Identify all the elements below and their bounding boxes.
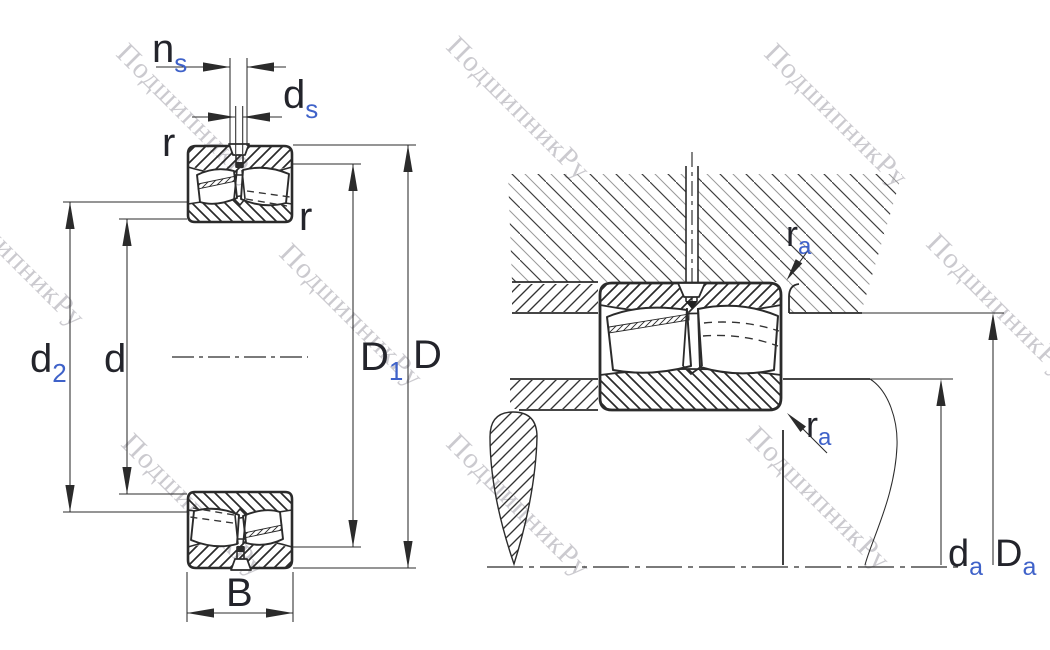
watermark-text: ПодшипникРу — [758, 37, 915, 194]
label-ds: ds — [283, 73, 318, 124]
label-da: da — [948, 533, 983, 581]
lubrication-groove-notch — [229, 144, 249, 155]
label-Da: Da — [995, 533, 1036, 581]
label-r-top-right: r — [299, 195, 312, 239]
label-d2: d2 — [30, 337, 67, 388]
inner-ring-hatch — [601, 370, 780, 410]
watermark-text: ПодшипникРу — [440, 30, 597, 187]
right-mounting-drawing — [487, 152, 1004, 567]
dim-Da — [862, 313, 1004, 565]
diagram-canvas: ПодшипникРу ПодшипникРу ПодшипникРу Подш… — [0, 0, 1050, 650]
bearing-technical-drawing: ПодшипникРу ПодшипникРу ПодшипникРу Подш… — [0, 0, 1050, 650]
label-d: d — [104, 337, 126, 381]
label-r-top-left: r — [162, 121, 175, 165]
lubrication-hole-mark — [236, 162, 244, 168]
label-B: B — [226, 571, 253, 615]
shaft-band-hatch — [510, 380, 598, 409]
watermark-text: ПодшипникРу — [0, 177, 92, 334]
shaft-break-section — [490, 412, 537, 564]
housing-hatch-left — [508, 174, 686, 282]
watermark-text: ПодшипникРу — [273, 237, 430, 394]
seat-band-hatch — [512, 284, 598, 312]
label-D: D — [413, 333, 442, 377]
label-ns: ns — [152, 27, 187, 78]
roller-right — [698, 306, 778, 374]
dim-da — [870, 379, 953, 565]
label-ra-bottom: ra — [806, 404, 832, 451]
watermark-text: ПодшипникРу — [920, 227, 1050, 384]
mounted-bearing-section — [600, 283, 781, 410]
